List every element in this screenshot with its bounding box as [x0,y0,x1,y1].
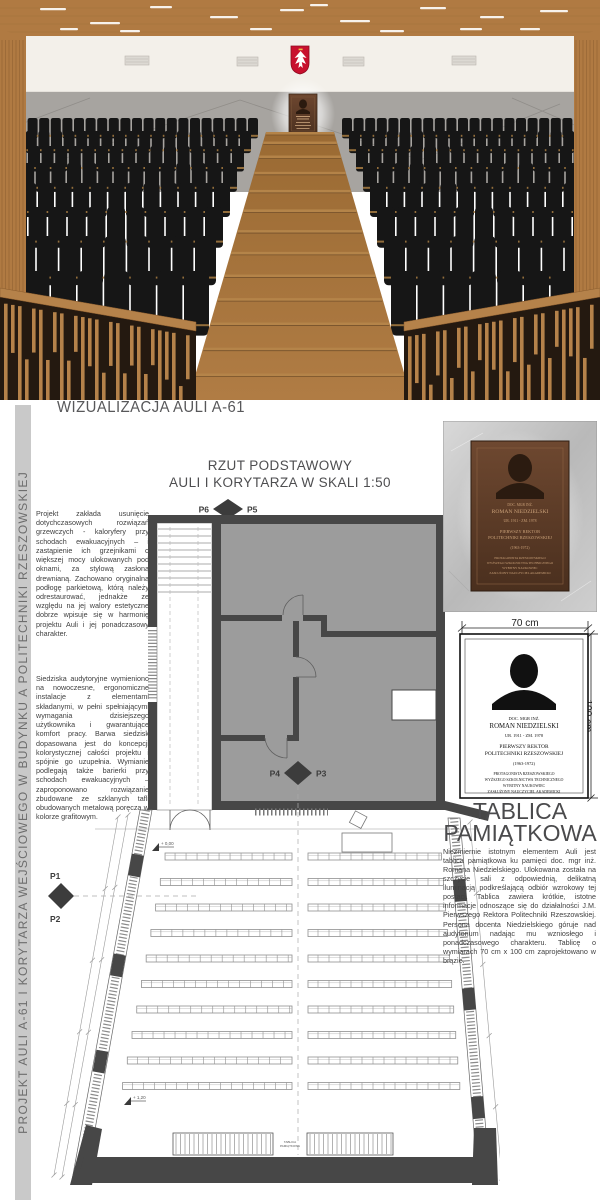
svg-text:P1: P1 [50,871,61,881]
svg-text:ZASŁUŻONY NAUCZYCIEL AKADEMICK: ZASŁUŻONY NAUCZYCIEL AKADEMICKI [489,570,550,575]
plan-title-line1: RZUT PODSTAWOWY [120,457,440,474]
side-wood-wall-right [574,30,600,300]
staircase-shaft [148,515,221,810]
elevation-marker-b: + 1,20 [124,1095,146,1105]
svg-text:P5: P5 [247,505,258,515]
side-title-strip: PROJEKT AULI A-61 I KORYTARZA WEJŚCIOWEG… [15,405,31,1200]
width-label: 70 cm [511,618,538,629]
corridor-rooms: P4 P3 [212,515,445,810]
auditorium-visualization-photo [0,0,600,400]
wood-ceiling [0,0,600,38]
visualization-title: WIZUALIZACJA AULI A-61 [57,399,245,417]
portrait-silhouette [508,454,532,482]
memorial-plaque-photo: DOC. MGR INŻ. ROMAN NIEDZIELSKI UR. 1911… [443,421,597,612]
svg-text:ROMAN NIEDZIELSKI: ROMAN NIEDZIELSKI [492,509,549,515]
lectern [349,811,367,829]
svg-text:PIERWSZY REKTOR: PIERWSZY REKTOR [499,744,549,750]
plan-title-line2: AULI I KORYTARZA W SKALI 1:50 [120,474,440,491]
svg-text:PIERWSZY REKTOR: PIERWSZY REKTOR [500,529,540,534]
svg-text:WYŻSZEGO SZKOLNICTWA TECHNICZN: WYŻSZEGO SZKOLNICTWA TECHNICZNEGO [485,777,564,782]
floor-plan-drawing: P6 P5 [40,495,500,1200]
plaque-dimension-drawing: 70 cm 100 cm DOC. MGR INŻ. ROMAN NIEDZIE… [452,616,600,808]
plaque-face: DOC. MGR INŻ. ROMAN NIEDZIELSKI UR. 1911… [471,441,569,591]
svg-text:ZASŁUŻONY NAUCZYCIEL AKADEMICK: ZASŁUŻONY NAUCZYCIEL AKADEMICKI [488,789,562,794]
plan-title: RZUT PODSTAWOWY AULI I KORYTARZA W SKALI… [120,457,440,491]
svg-text:WYŻSZEGO SZKOLNICTWA TECHNICZN: WYŻSZEGO SZKOLNICTWA TECHNICZNEGO [487,560,554,565]
auditorium-hall: TABLICA PAMIĄTKOWA + 0,00 + 1,20 [52,785,501,1185]
svg-text:PAMIĄTKOWA: PAMIĄTKOWA [280,1144,300,1148]
elevation-marker-a: + 0,00 [152,841,174,851]
svg-text:P4: P4 [270,769,281,779]
svg-text:POLITECHNIKI RZESZOWSKIEJ: POLITECHNIKI RZESZOWSKIEJ [488,535,552,540]
svg-text:+ 0,00: + 0,00 [161,841,174,846]
paragraph-memorial: Niezmiernie istotnym elementem Auli jest… [443,847,596,965]
svg-text:DOC. MGR INŻ.: DOC. MGR INŻ. [507,502,532,507]
svg-text:PROTAGONISTA RZESZOWSKIEGO: PROTAGONISTA RZESZOWSKIEGO [493,772,554,776]
svg-text:UR. 1911 - ZM. 1978: UR. 1911 - ZM. 1978 [505,733,544,738]
svg-text:POLITECHNIKI RZESZOWSKIEJ: POLITECHNIKI RZESZOWSKIEJ [485,751,563,757]
svg-text:(1963-1972): (1963-1972) [511,546,531,550]
side-title-text: PROJEKT AULI A-61 I KORYTARZA WEJŚCIOWEG… [16,471,30,1134]
memorial-section-heading: TABLICA PAMIĄTKOWA [440,801,600,845]
svg-text:DOC. MGR INŻ.: DOC. MGR INŻ. [509,716,540,721]
svg-text:ROMAN NIEDZIELSKI: ROMAN NIEDZIELSKI [490,723,560,730]
svg-text:PROTAGONISTA RZESZOWSKIEGO: PROTAGONISTA RZESZOWSKIEGO [494,556,546,560]
svg-text:P2: P2 [50,914,61,924]
svg-text:WYBITNY NAUKOWIEC: WYBITNY NAUKOWIEC [503,784,546,788]
svg-text:P3: P3 [316,769,327,779]
svg-text:(1963-1972): (1963-1972) [513,761,535,766]
svg-text:WYBITNY NAUKOWIEC: WYBITNY NAUKOWIEC [502,566,537,570]
svg-text:+ 1,20: + 1,20 [133,1095,146,1100]
bench-rows [123,853,460,1090]
table [342,833,392,852]
svg-text:P6: P6 [199,505,210,515]
memorial-plaque-on-wall [289,94,317,134]
svg-text:UR. 1911 - ZM. 1978: UR. 1911 - ZM. 1978 [504,519,537,523]
polish-eagle-emblem [291,46,309,74]
side-wood-wall-left [0,30,26,300]
